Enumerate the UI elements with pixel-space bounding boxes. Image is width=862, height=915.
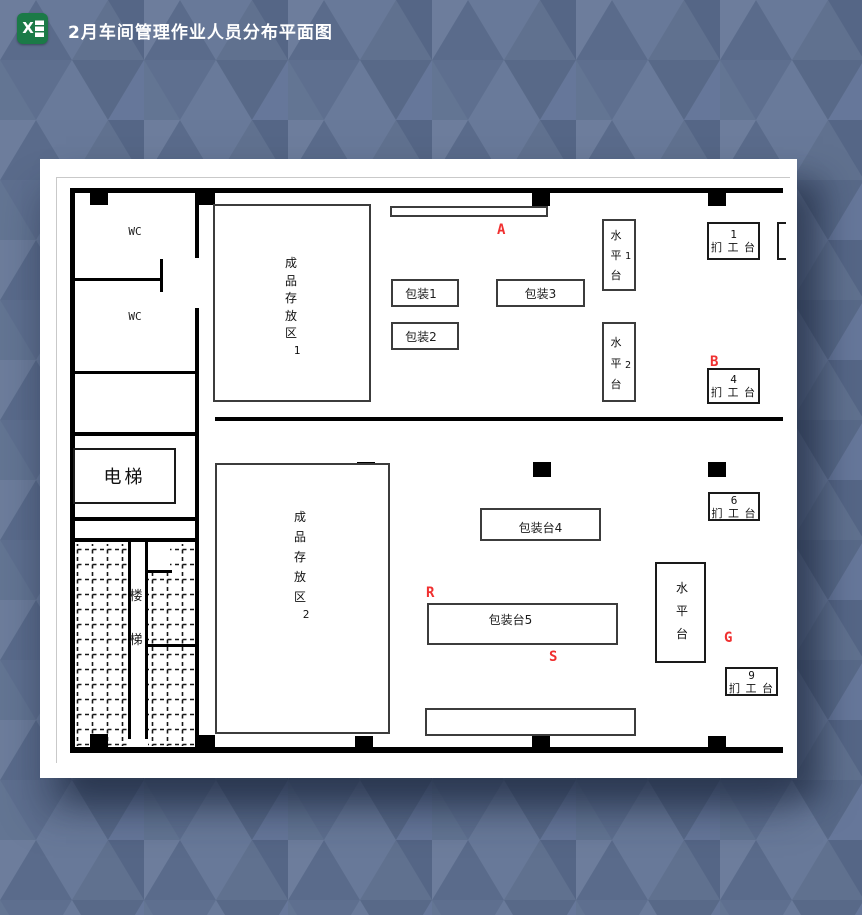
- marker-b: B: [710, 355, 718, 369]
- wall-wc-divider: [70, 278, 161, 281]
- storage-area-2-label: 成品存放区: [293, 507, 307, 607]
- wall-top: [70, 188, 783, 193]
- room-label-wc2: WC: [120, 310, 150, 323]
- marker-r: R: [426, 586, 434, 600]
- excel-icon-letter: X: [21, 19, 35, 38]
- wall-elevator-top: [70, 432, 199, 436]
- worktable-4-number: 4: [730, 373, 737, 386]
- stairs-label-ti: 梯: [124, 629, 148, 648]
- water-platform-1: 水平台 1: [602, 219, 636, 291]
- elevator-room: 电梯: [73, 448, 176, 504]
- water-platform-3-label: 水平台: [675, 577, 689, 646]
- worktable-6-label: 扪 工 台: [712, 507, 757, 520]
- worktable-6-number: 6: [731, 494, 738, 507]
- marker-g: G: [724, 631, 732, 645]
- worktable-9: 9 扪 工 台: [725, 667, 778, 696]
- worktable-1-number: 1: [730, 228, 737, 241]
- packing-2: 包装2: [391, 322, 459, 350]
- worktable-partial: [777, 222, 786, 260]
- worktable-6: 6 扪 工 台: [708, 492, 760, 521]
- marker-s: S: [549, 650, 557, 664]
- packing-3-label: 包装3: [525, 285, 557, 302]
- column: [532, 193, 550, 206]
- storage-area-1-label: 成品存放区: [284, 255, 298, 343]
- shelf-bottom: [425, 708, 636, 736]
- excel-icon: X: [17, 13, 48, 44]
- water-platform-2-number: 2: [625, 360, 631, 371]
- column: [708, 193, 726, 206]
- packing-2-label: 包装2: [405, 328, 445, 345]
- frame-line-top: [56, 177, 790, 178]
- stairs-label-lou: 楼: [124, 585, 148, 604]
- column: [90, 192, 108, 205]
- water-platform-2: 水平台 2: [602, 322, 636, 402]
- wall-wc2-bottom: [70, 371, 199, 374]
- wall-elevator-bottom1: [70, 517, 199, 521]
- column: [708, 462, 726, 477]
- column: [90, 734, 108, 747]
- packing-desk-5: 包装台5: [427, 603, 618, 645]
- marker-a: A: [497, 223, 505, 237]
- column: [533, 462, 551, 477]
- frame-line-left: [56, 177, 57, 763]
- wall-middle-divider: [215, 417, 783, 421]
- column: [197, 735, 215, 748]
- worktable-4: 4 扪 工 台: [707, 368, 760, 404]
- shelf-top: [390, 206, 548, 217]
- wall-bottom: [70, 747, 783, 753]
- packing-1: 包装1: [391, 279, 459, 307]
- water-platform-1-number: 1: [625, 251, 631, 262]
- column: [532, 736, 550, 749]
- packing-1-label: 包装1: [405, 285, 445, 302]
- water-platform-2-label: 水平台: [609, 332, 623, 395]
- worktable-4-label: 扪 工 台: [711, 386, 756, 399]
- water-platform-3: 水平台: [655, 562, 706, 663]
- elevator-label: 电梯: [104, 463, 146, 489]
- storage-area-2-number: 2: [299, 608, 313, 621]
- header-bar: X 2月车间管理作业人员分布平面图: [0, 0, 862, 57]
- worktable-1: 1 扪 工 台: [707, 222, 760, 260]
- packing-desk-4: 包装台4: [480, 508, 601, 541]
- packing-3: 包装3: [496, 279, 585, 307]
- worktable-9-label: 扪 工 台: [729, 682, 774, 695]
- column: [355, 736, 373, 749]
- room-label-wc1: WC: [120, 225, 150, 238]
- excel-icon-sheet: [35, 19, 44, 38]
- water-platform-1-label: 水平台: [609, 226, 623, 286]
- storage-area-1-number: 1: [290, 344, 304, 357]
- floorplan-canvas: WC WC 电梯 楼 梯 成品存放区 1 成品存放区 2: [40, 159, 797, 778]
- worktable-1-label: 扪 工 台: [711, 241, 756, 254]
- worktable-9-number: 9: [748, 669, 755, 682]
- packing-desk-5-label: 包装台5: [489, 605, 557, 628]
- wc-door-leaf: [160, 259, 163, 292]
- page-title: 2月车间管理作业人员分布平面图: [68, 18, 333, 43]
- packing-desk-4-label: 包装台4: [519, 519, 563, 539]
- column: [708, 736, 726, 749]
